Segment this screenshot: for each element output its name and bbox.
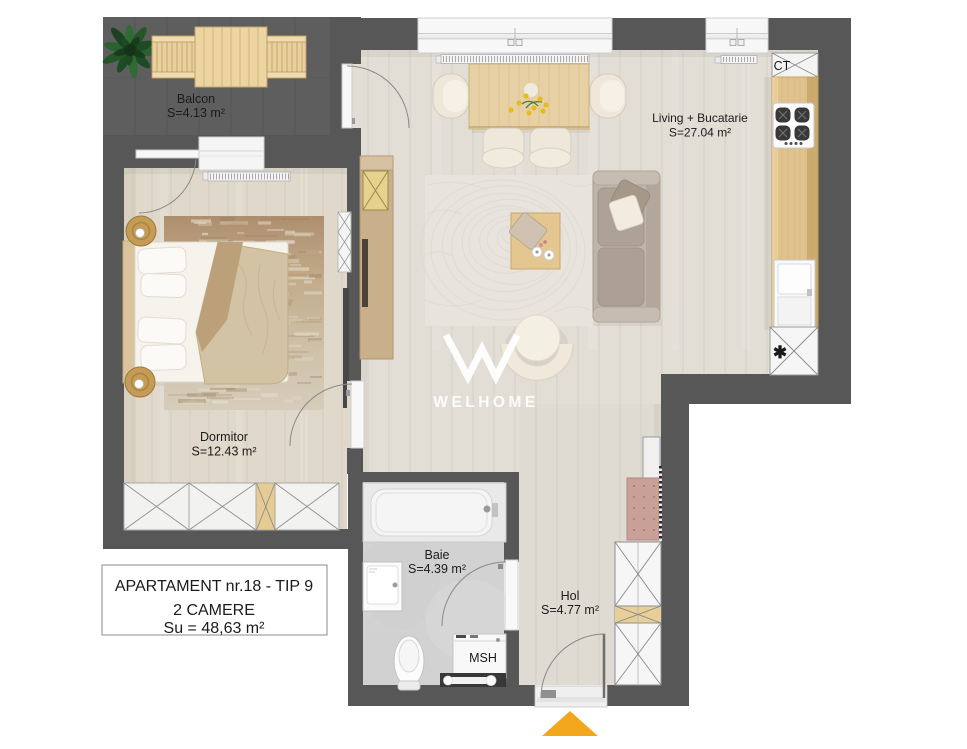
svg-text:✱: ✱	[773, 343, 787, 362]
svg-text:CT: CT	[774, 59, 791, 73]
svg-text:WELHOME: WELHOME	[433, 394, 538, 411]
svg-text:S=4.77 m²: S=4.77 m²	[541, 603, 599, 617]
svg-text:Baie: Baie	[424, 548, 449, 562]
svg-text:S=12.43 m²: S=12.43 m²	[192, 445, 257, 459]
svg-text:S=4.13 m²: S=4.13 m²	[167, 106, 225, 120]
svg-text:Hol: Hol	[561, 589, 580, 603]
svg-text:APARTAMENT nr.18 - TIP 9: APARTAMENT nr.18 - TIP 9	[115, 578, 313, 595]
svg-text:S=27.04 m²: S=27.04 m²	[669, 126, 731, 140]
svg-text:Dormitor: Dormitor	[200, 430, 248, 444]
svg-text:2 CAMERE: 2 CAMERE	[173, 602, 255, 619]
svg-text:Living + Bucatarie: Living + Bucatarie	[652, 111, 748, 125]
svg-text:MSH: MSH	[469, 651, 497, 665]
svg-text:S=4.39 m²: S=4.39 m²	[408, 562, 466, 576]
svg-text:Balcon: Balcon	[177, 92, 215, 106]
svg-text:Su = 48,63 m²: Su = 48,63 m²	[164, 620, 266, 637]
